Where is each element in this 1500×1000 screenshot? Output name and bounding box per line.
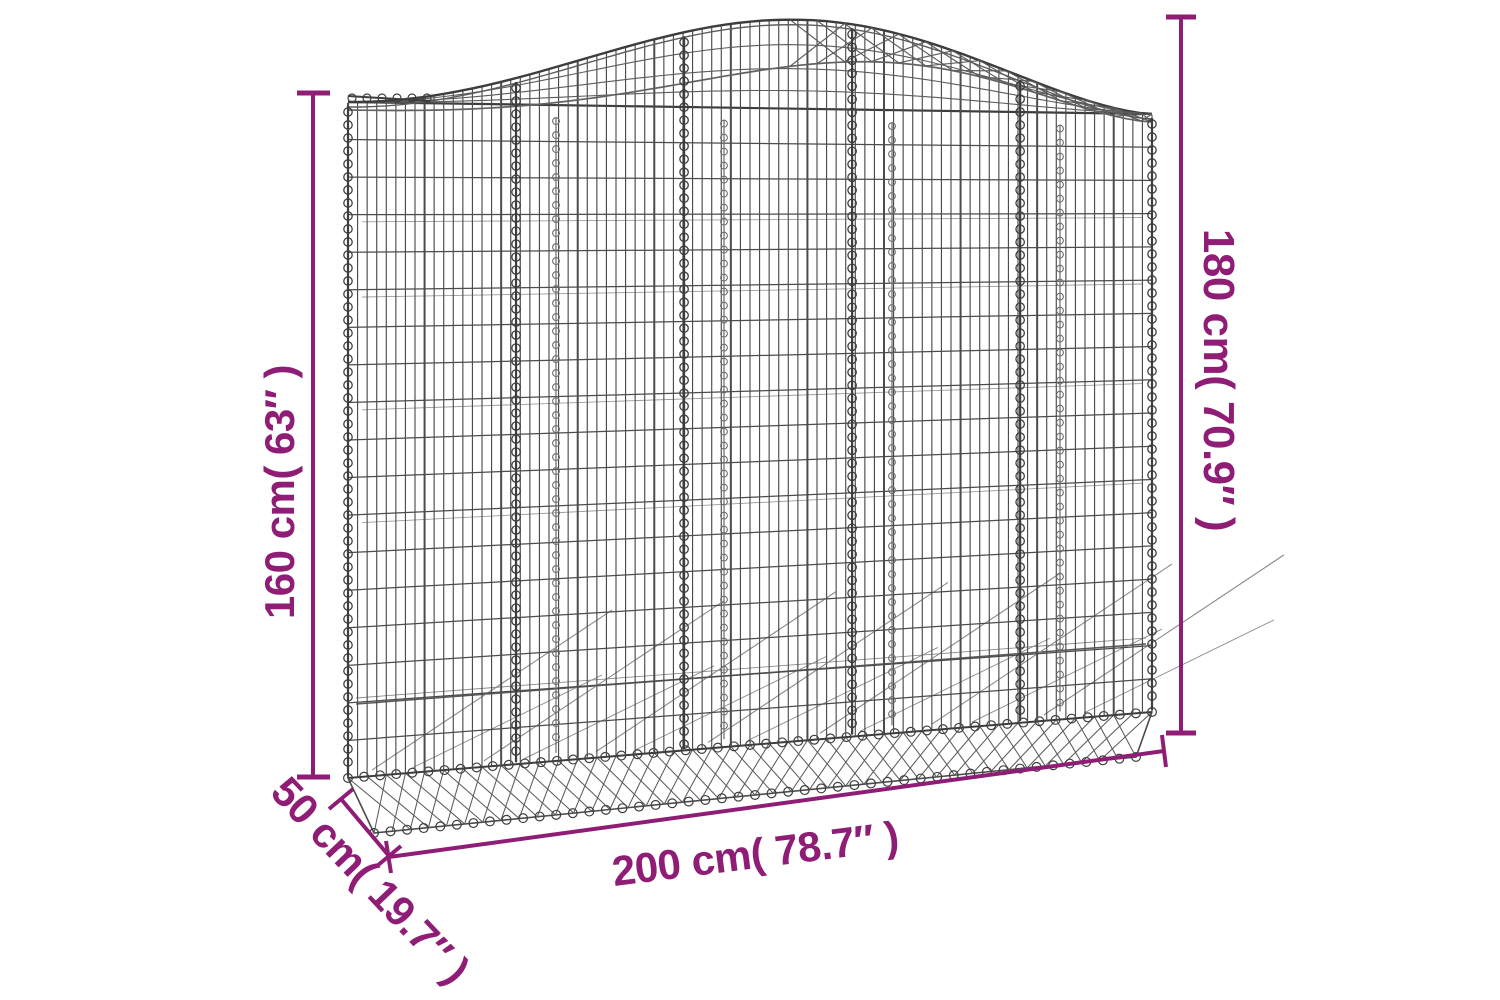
mesh-wire: [979, 60, 1034, 92]
mesh-wire: [539, 762, 591, 811]
mesh-wire: [483, 765, 501, 822]
mesh-wire: [1037, 721, 1063, 764]
mesh-wire: [1056, 720, 1081, 763]
mesh-wire: [646, 751, 673, 806]
mesh-wire: [559, 761, 610, 810]
mesh-wire: [755, 742, 788, 795]
mesh-wire: [447, 769, 463, 826]
mesh-wire: [973, 723, 1018, 773]
mesh-wire: [596, 592, 836, 752]
dimension-height-left: 160 cm( 63″ ): [256, 93, 330, 777]
mesh-wire: [1044, 555, 1284, 715]
mesh-wire: [682, 748, 711, 802]
height-right-label: 180 cm( 70.9″ ): [1194, 229, 1243, 531]
mesh-wire: [410, 772, 424, 830]
mesh-wire: [773, 740, 807, 793]
mesh-wire: [769, 743, 809, 789]
mesh-wire: [578, 759, 628, 808]
mesh-wire: [961, 728, 991, 772]
mesh-wire: [1075, 718, 1099, 760]
mesh-wire: [362, 483, 1142, 522]
mesh-wire: [719, 745, 750, 799]
dimension-depth: 50 cm( 19.7″ ): [262, 768, 479, 993]
mesh-wire: [412, 675, 602, 768]
mesh-wire: [701, 747, 731, 801]
height-left-label: 160 cm( 63″ ): [256, 365, 303, 619]
width-label: 200 cm( 78.7″ ): [609, 812, 901, 895]
mesh-wire: [428, 770, 443, 827]
mesh-wire: [941, 729, 972, 773]
gabion-basket-wireframe: [344, 20, 1284, 838]
mesh-wire: [362, 384, 1142, 410]
mesh-wire: [362, 284, 1142, 297]
mesh-wire: [731, 747, 773, 794]
mesh-wire: [807, 740, 845, 786]
mesh-wire: [788, 742, 827, 788]
mesh-wire: [362, 218, 1142, 222]
mesh-wire: [501, 764, 520, 820]
mesh-wire: [828, 736, 865, 788]
depth-label: 50 cm( 19.7″ ): [262, 768, 479, 993]
mesh-wire: [348, 778, 410, 829]
mesh-wire: [865, 736, 900, 781]
dim-tick-right: [1162, 735, 1166, 767]
mesh-wire: [884, 734, 918, 779]
mesh-wire: [465, 767, 482, 824]
mesh-wire: [972, 629, 1162, 722]
product-dimension-diagram: 160 cm( 63″ ) 180 cm( 70.9″ ) 200 cm( 78…: [0, 0, 1500, 1000]
mesh-wire: [712, 748, 755, 795]
mesh-wire: [809, 737, 845, 789]
mesh-wire: [750, 745, 791, 791]
mesh-wire: [737, 743, 769, 796]
mesh-wire: [673, 751, 718, 798]
gabion-dimension-drawing: 160 cm( 63″ ) 180 cm( 70.9″ ) 200 cm( 78…: [0, 0, 1500, 1000]
mesh-wire: [664, 750, 692, 804]
mesh-wire: [693, 750, 737, 797]
